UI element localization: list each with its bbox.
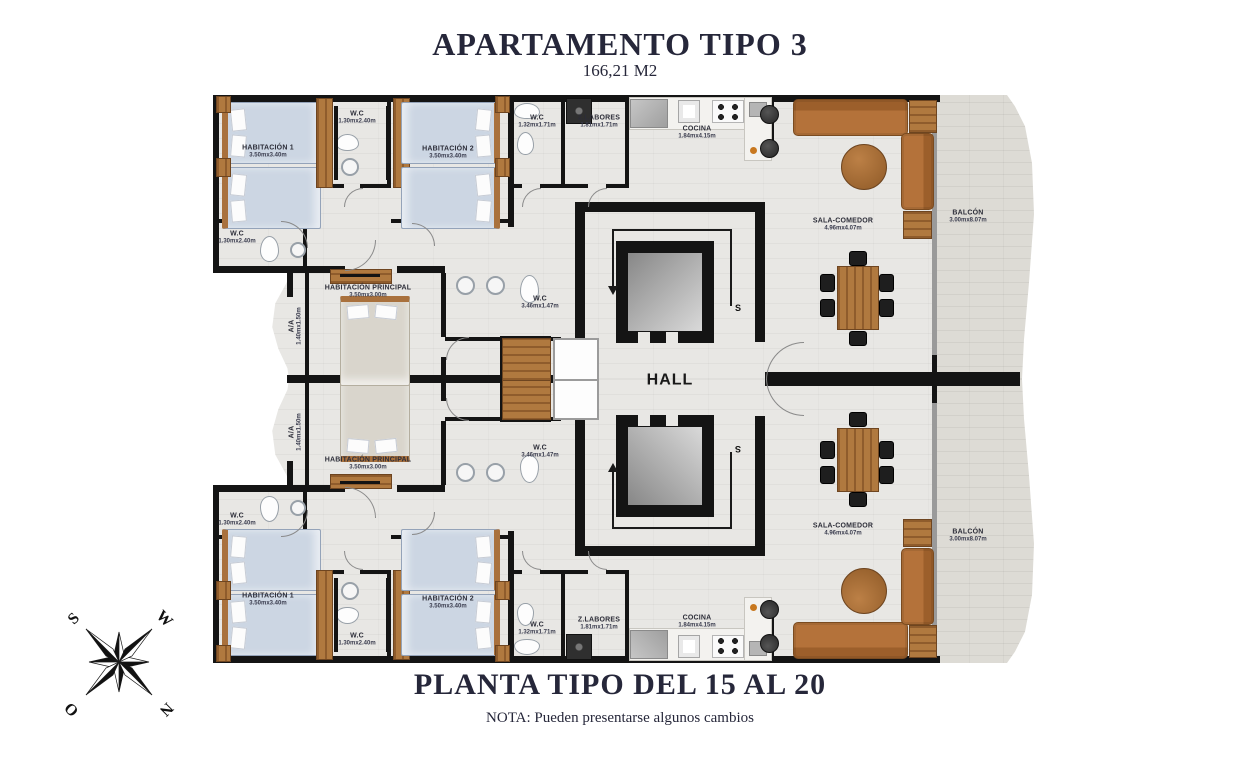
door-gap xyxy=(344,570,360,574)
room-label-sala: SALA-COMEDOR4.96mx4.07m xyxy=(813,522,873,539)
nightstand xyxy=(495,158,510,177)
closet-door xyxy=(340,274,380,277)
stool-icon xyxy=(760,634,779,653)
fridge-icon xyxy=(630,99,668,128)
door-gap xyxy=(588,570,606,574)
wall xyxy=(397,485,445,492)
sofa-symbol xyxy=(901,548,934,625)
pillow xyxy=(346,304,369,320)
pillow xyxy=(230,108,247,131)
room-label-wc: W.C1.32mx1.71m xyxy=(518,114,555,131)
room-label-wc: W.C1.30mx2.40m xyxy=(338,110,375,127)
chair-symbol xyxy=(849,492,867,507)
room-label-sala: SALA-COMEDOR4.96mx4.07m xyxy=(813,217,873,234)
chair-symbol xyxy=(820,274,835,292)
wall xyxy=(213,266,345,273)
stair-arrow-icon xyxy=(608,463,618,472)
room-label-habitacion1: HABITACIÓN 13.50mx3.40m xyxy=(242,592,294,609)
chair-symbol xyxy=(820,466,835,484)
hall-wall xyxy=(755,202,765,342)
wall xyxy=(441,357,446,379)
pillow xyxy=(230,173,247,196)
wall xyxy=(329,570,391,574)
room-label-cocina: COCINA1.84mx4.15m xyxy=(678,125,715,142)
kitchen-sink-icon xyxy=(678,100,700,123)
door-gap xyxy=(522,570,540,574)
kitchen-sink-icon xyxy=(678,635,700,658)
sofa-symbol xyxy=(901,133,934,210)
stair-s-mark: S xyxy=(735,444,741,454)
bed-symbol xyxy=(222,529,321,591)
room-label-wc: W.C1.30mx2.40m xyxy=(218,512,255,529)
room-label-zlabores: Z.LABORES1.81mx1.71m xyxy=(578,114,620,131)
nightstand xyxy=(216,645,231,662)
dining-table xyxy=(837,266,879,330)
shaft-door-gap xyxy=(638,332,650,343)
stair-path-line xyxy=(612,527,732,529)
stove-icon xyxy=(712,635,744,658)
nightstand xyxy=(495,96,510,113)
compass-rose: S W O N xyxy=(55,606,183,718)
stool-icon xyxy=(760,600,779,619)
door-gap xyxy=(344,184,360,188)
chair-symbol xyxy=(879,299,894,317)
stool-icon xyxy=(760,139,779,158)
room-label-aa: A/A1.40mx1.50m xyxy=(288,413,305,450)
chair-symbol xyxy=(820,441,835,459)
coffee-table xyxy=(841,144,887,190)
pillow xyxy=(374,438,397,454)
bed-symbol xyxy=(401,529,500,591)
nightstand xyxy=(216,581,231,600)
torn-edge-cutout xyxy=(140,271,292,379)
plant-icon xyxy=(750,147,757,154)
elevator-shaft-interior xyxy=(628,427,702,505)
pillow xyxy=(475,535,492,558)
pillow xyxy=(230,626,247,649)
stool-icon xyxy=(760,105,779,124)
sink-icon xyxy=(456,276,475,295)
pillow xyxy=(346,438,369,454)
pillow xyxy=(475,108,492,131)
room-label-balcon: BALCÓN3.00mx8.07m xyxy=(949,209,986,226)
balcony-floor xyxy=(935,95,1035,379)
elevator-shaft-interior xyxy=(628,253,702,331)
shaft-door-gap xyxy=(666,332,678,343)
pillow xyxy=(230,199,247,222)
nightstand xyxy=(216,96,231,113)
stair-path-line xyxy=(612,472,614,529)
pillow xyxy=(475,626,492,649)
pillow xyxy=(230,561,247,584)
lobby-wood-floor xyxy=(502,377,551,420)
duct-box xyxy=(553,377,599,420)
sink-icon xyxy=(341,582,359,600)
closet xyxy=(316,98,333,188)
closet-door xyxy=(340,481,380,484)
pillow xyxy=(475,600,492,623)
shaft-door-gap xyxy=(638,415,650,426)
room-label-balcon: BALCÓN3.00mx8.07m xyxy=(949,528,986,545)
floor-plan-page: { "title": {"main": "APARTAMENTO TIPO 3"… xyxy=(0,0,1240,720)
room-label-wc: W.C1.30mx2.40m xyxy=(218,230,255,247)
washer-icon xyxy=(566,634,592,660)
coffee-table xyxy=(841,568,887,614)
room-label-habitacion1: HABITACIÓN 13.50mx3.40m xyxy=(242,144,294,161)
pillow xyxy=(230,535,247,558)
toilet-icon xyxy=(517,132,534,155)
closet xyxy=(316,570,333,660)
stair-s-mark: S xyxy=(735,303,741,313)
sofa-symbol xyxy=(793,622,908,659)
room-label-wc-principal: W.C3.46mx1.47m xyxy=(521,444,558,461)
room-label-habitacion2: HABITACIÓN 23.50mx3.40m xyxy=(422,145,474,162)
dining-table xyxy=(837,428,879,492)
stair-arrow-icon xyxy=(608,286,618,295)
bed-symbol xyxy=(340,296,410,386)
wall xyxy=(397,266,445,273)
compass-n: N xyxy=(156,699,177,718)
wall xyxy=(932,379,937,403)
bed-symbol xyxy=(222,167,321,229)
sink-icon xyxy=(341,158,359,176)
stair-path-line xyxy=(612,229,614,286)
torn-edge-cutout xyxy=(140,379,292,487)
nightstand xyxy=(495,645,510,662)
chair-symbol xyxy=(849,251,867,266)
room-label-wc: W.C1.30mx2.40m xyxy=(338,632,375,649)
stair-path-line xyxy=(730,452,732,529)
wall xyxy=(441,273,446,337)
chair-symbol xyxy=(849,331,867,346)
compass-s: S xyxy=(65,610,83,628)
room-label-cocina: COCINA1.84mx4.15m xyxy=(678,614,715,631)
pillow xyxy=(374,304,397,320)
stair-path-line xyxy=(730,229,732,306)
closet-door xyxy=(386,106,390,180)
side-table xyxy=(903,211,932,239)
pillow xyxy=(475,561,492,584)
plant-icon xyxy=(750,604,757,611)
balcony-floor xyxy=(935,379,1035,663)
wall xyxy=(305,379,309,485)
wall xyxy=(305,273,309,379)
stair-path-line xyxy=(612,229,732,231)
bed-symbol xyxy=(401,167,500,229)
closet-door xyxy=(386,578,390,652)
chair-symbol xyxy=(879,466,894,484)
side-table xyxy=(903,519,932,547)
toilet-icon xyxy=(260,236,279,262)
chair-symbol xyxy=(879,274,894,292)
chair-symbol xyxy=(849,412,867,427)
room-label-zlabores: Z.LABORES1.81mx1.71m xyxy=(578,616,620,633)
nightstand xyxy=(216,158,231,177)
compass-w: W xyxy=(153,607,176,630)
pillow xyxy=(475,199,492,222)
room-label-hall: HALL xyxy=(647,371,694,392)
nightstand xyxy=(495,581,510,600)
wall xyxy=(561,570,565,663)
room-label-habitacion2: HABITACIÓN 23.50mx3.40m xyxy=(422,595,474,612)
room-label-principal: HABITACIÓN PRINCIPAL3.50mx3.00m xyxy=(325,456,412,473)
wall xyxy=(561,95,565,188)
sink-icon xyxy=(486,276,505,295)
side-table xyxy=(909,100,937,133)
sink-icon xyxy=(456,463,475,482)
pillow xyxy=(475,173,492,196)
room-label-wc: W.C1.32mx1.71m xyxy=(518,621,555,638)
side-table xyxy=(909,625,937,658)
room-label-wc-principal: W.C3.46mx1.47m xyxy=(521,295,558,312)
hall-wall xyxy=(755,416,765,556)
shaft-door-gap xyxy=(666,415,678,426)
chair-symbol xyxy=(879,441,894,459)
wall xyxy=(932,355,937,379)
sofa-symbol xyxy=(793,99,908,136)
pillow xyxy=(475,134,492,157)
duct-box xyxy=(553,338,599,381)
room-label-principal: HABITACIÓN PRINCIPAL3.50mx3.00m xyxy=(325,284,412,301)
room-label-aa: A/A1.40mx1.50m xyxy=(288,307,305,344)
wall xyxy=(287,461,293,485)
toilet-icon xyxy=(336,134,359,151)
lobby-wood-floor xyxy=(502,338,551,381)
chair-symbol xyxy=(820,299,835,317)
wall xyxy=(441,421,446,485)
fridge-icon xyxy=(630,630,668,659)
stove-icon xyxy=(712,100,744,123)
wall xyxy=(213,485,345,492)
compass-o: O xyxy=(61,699,82,718)
sink-icon xyxy=(486,463,505,482)
wall xyxy=(287,273,293,297)
